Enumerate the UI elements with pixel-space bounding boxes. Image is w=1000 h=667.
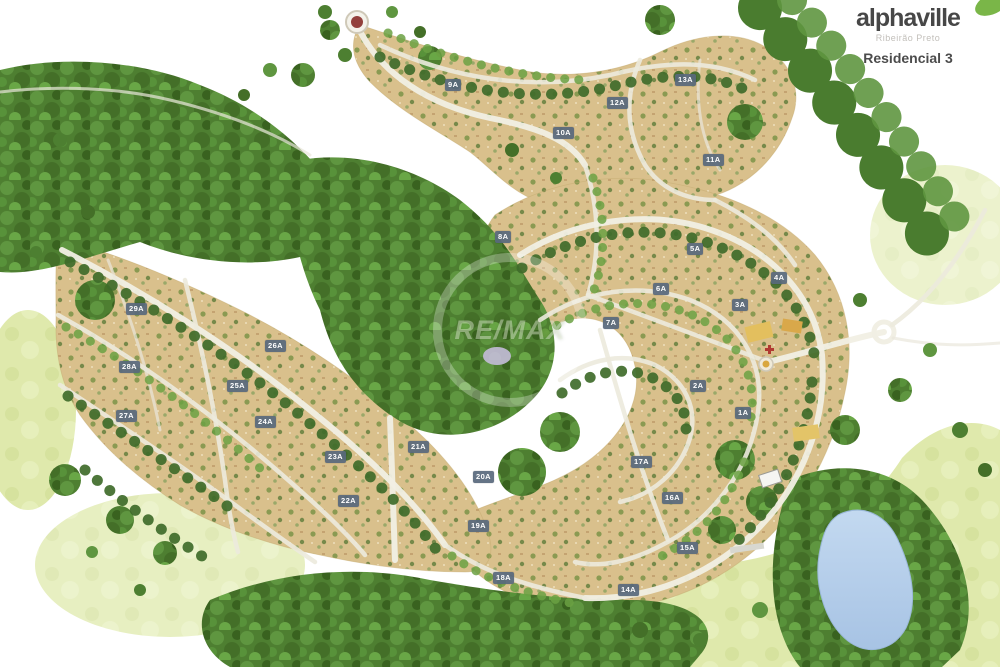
forest-topleft [0, 62, 342, 273]
brand-name: alphaville [828, 6, 988, 31]
masterplan-canvas: RE/MAX 1A2A3A4A5A6A7A8A9A10A11A12A13A14A… [0, 0, 1000, 667]
masterplan-illustration [0, 0, 1000, 667]
brand-location: Ribeirão Preto [828, 33, 988, 43]
developer-logo: alphaville Ribeirão Preto Residencial 3 [828, 6, 988, 66]
small-pond [483, 347, 511, 365]
roundabout-center-feature [351, 16, 363, 28]
project-name: Residencial 3 [828, 50, 988, 66]
